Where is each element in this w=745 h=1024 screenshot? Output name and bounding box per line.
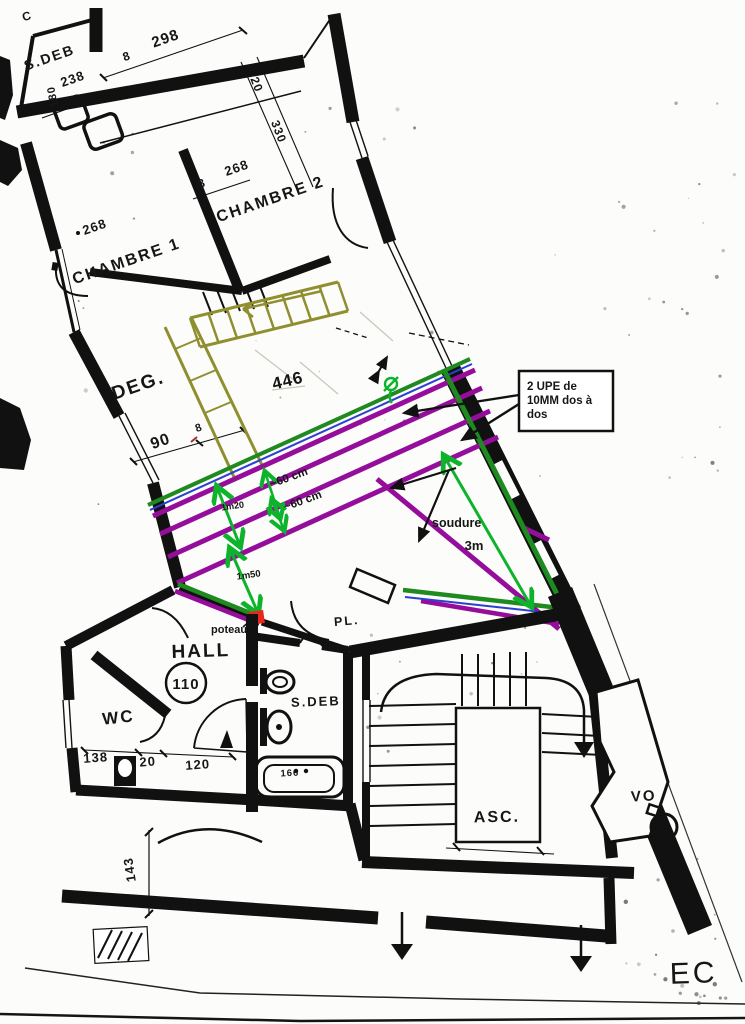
speckle: [655, 954, 657, 956]
stair-bottom-curve: [158, 829, 262, 843]
speckle: [384, 419, 385, 420]
speckle: [718, 374, 721, 377]
speckle: [383, 137, 386, 140]
door-arc-hall-left: [152, 608, 188, 638]
wall-stair-top: [350, 612, 572, 652]
speckle: [733, 173, 736, 176]
arrow-3m: [444, 456, 531, 606]
speckle: [84, 388, 88, 392]
dim-330: 330: [268, 118, 289, 145]
speckle: [681, 308, 683, 310]
speckle: [82, 307, 84, 309]
upper-wing-walls: [17, 8, 572, 651]
speckle: [714, 914, 716, 916]
speckle: [413, 126, 416, 129]
dim-8-top: 8: [121, 48, 133, 64]
speckle: [279, 397, 281, 399]
room-label-hall-number: 110: [172, 676, 199, 693]
speckle: [688, 198, 689, 199]
speckle: [329, 107, 332, 110]
hatched-window: [93, 927, 149, 964]
speckle: [716, 102, 718, 104]
speckle: [470, 692, 473, 695]
speckle: [668, 476, 671, 479]
speckle: [698, 183, 700, 185]
speckle: [654, 973, 657, 976]
speckle: [618, 201, 620, 203]
dim-8-deg: 8: [194, 421, 205, 435]
speckle: [721, 249, 724, 252]
speckle: [628, 334, 630, 336]
door-arc-wc: [140, 716, 165, 742]
room-label-pl: PL.: [333, 613, 360, 629]
speckle: [399, 661, 401, 663]
dim-20-wc: 20: [139, 753, 156, 769]
dot-before-268: [76, 231, 80, 235]
speckle: [710, 461, 714, 465]
dim-268-chambre1: 268: [80, 216, 108, 238]
corner-mark: C: [20, 8, 33, 24]
room-label-sdeb-lower: S.DEB: [291, 693, 341, 710]
speckle: [648, 298, 651, 301]
upe-beam-2: [160, 388, 482, 534]
speckle: [387, 750, 390, 753]
speckle: [603, 307, 606, 310]
door-arc-hall-stairs: [194, 699, 246, 748]
dim-268-chambre2: 268: [222, 157, 250, 179]
door-arc-chambre2: [333, 188, 368, 248]
lower-block-walls: [62, 590, 700, 944]
speckle: [697, 1001, 701, 1005]
dim-143: 143: [120, 856, 139, 883]
label-1m20: 1m20: [220, 499, 244, 512]
room-label-wc: WC: [101, 706, 135, 728]
speckle: [622, 205, 626, 209]
stair-down-arrow: [574, 742, 594, 758]
dim-20-corridor: 20: [247, 75, 266, 94]
dim-90: 90: [148, 430, 172, 453]
upe-callout-line3: dos: [527, 409, 547, 421]
speckle: [697, 858, 699, 860]
upe-beam-bottom-left: [175, 591, 251, 621]
speckle: [679, 992, 682, 995]
speckle: [624, 900, 628, 904]
room-label-deg: DEG.: [109, 367, 167, 405]
arrow-1m20: [217, 487, 240, 546]
dim-298: 298: [150, 26, 182, 51]
speckle: [255, 340, 256, 341]
upe-callout-line2: 10MM dos à: [527, 395, 593, 407]
dim-166: 166: [280, 768, 299, 780]
speckle: [536, 661, 538, 663]
speckle: [110, 171, 114, 175]
page-mark-ec: EC: [669, 956, 718, 991]
speckle: [625, 962, 627, 964]
speckle: [719, 426, 721, 428]
speckle: [702, 222, 704, 224]
speckle: [682, 457, 683, 458]
exit-arrow-1: [391, 912, 413, 960]
upper-wing-labels: C S.DEB 298 8 238 180 20 330 8 268 CHAMB…: [20, 8, 326, 453]
soudure-arrow-2: [419, 470, 449, 541]
speckle: [653, 230, 655, 232]
closet-pl: [350, 569, 395, 603]
speckle: [719, 996, 722, 999]
speckle: [637, 962, 641, 966]
speckle: [319, 371, 320, 372]
speckle: [656, 878, 659, 881]
scanned-floor-plan: C S.DEB 298 8 238 180 20 330 8 268 CHAMB…: [0, 0, 745, 1024]
upe-callout-line1: 2 UPE de: [527, 381, 577, 393]
blue-line-top: [150, 364, 472, 510]
speckle: [686, 312, 689, 315]
speckle: [662, 301, 665, 304]
speckle: [98, 503, 100, 505]
speckle: [694, 457, 696, 459]
dim-238: 238: [58, 68, 86, 90]
speckle: [78, 300, 80, 302]
room-label-vo: VO: [630, 787, 657, 805]
speckle: [133, 217, 135, 219]
dim-138: 138: [83, 749, 109, 766]
room-label-hall: HALL: [171, 640, 230, 663]
speckle: [378, 715, 382, 719]
direction-triangle: [220, 730, 233, 748]
speckle: [395, 107, 399, 111]
speckle: [663, 977, 667, 981]
speckle: [304, 131, 306, 133]
wall-wc-diagonal: [94, 655, 168, 714]
speckle: [699, 996, 702, 999]
label-60cm-a: ~60 cm: [268, 466, 309, 491]
speckle: [717, 469, 719, 471]
soudure-label: soudure: [432, 516, 481, 530]
label-1m50: 1m50: [236, 568, 262, 582]
speckle: [370, 634, 373, 637]
speckle: [539, 475, 541, 477]
speckle: [674, 102, 677, 105]
poteau-label: poteau: [211, 624, 247, 636]
speckle: [131, 151, 134, 154]
dim-446: 446: [270, 368, 305, 394]
speckle: [724, 996, 727, 999]
room-label-asc: ASC.: [474, 809, 521, 827]
stair-direction-arrow: [243, 291, 322, 309]
speckle: [714, 938, 716, 940]
label-60cm-b: ~60 cm: [282, 489, 323, 514]
speckle: [694, 992, 698, 996]
speckle: [521, 673, 523, 675]
label-3m: 3m: [465, 538, 484, 553]
room-label-chambre2: CHAMBRE 2: [214, 173, 326, 226]
dim-120: 120: [185, 756, 211, 773]
speckle: [703, 995, 706, 998]
speckle: [377, 693, 378, 694]
speckle: [671, 929, 675, 933]
speckle: [554, 254, 556, 256]
fixture-toilet: [266, 671, 294, 693]
wall-stair-bottom: [362, 862, 634, 873]
speckle: [715, 275, 719, 279]
